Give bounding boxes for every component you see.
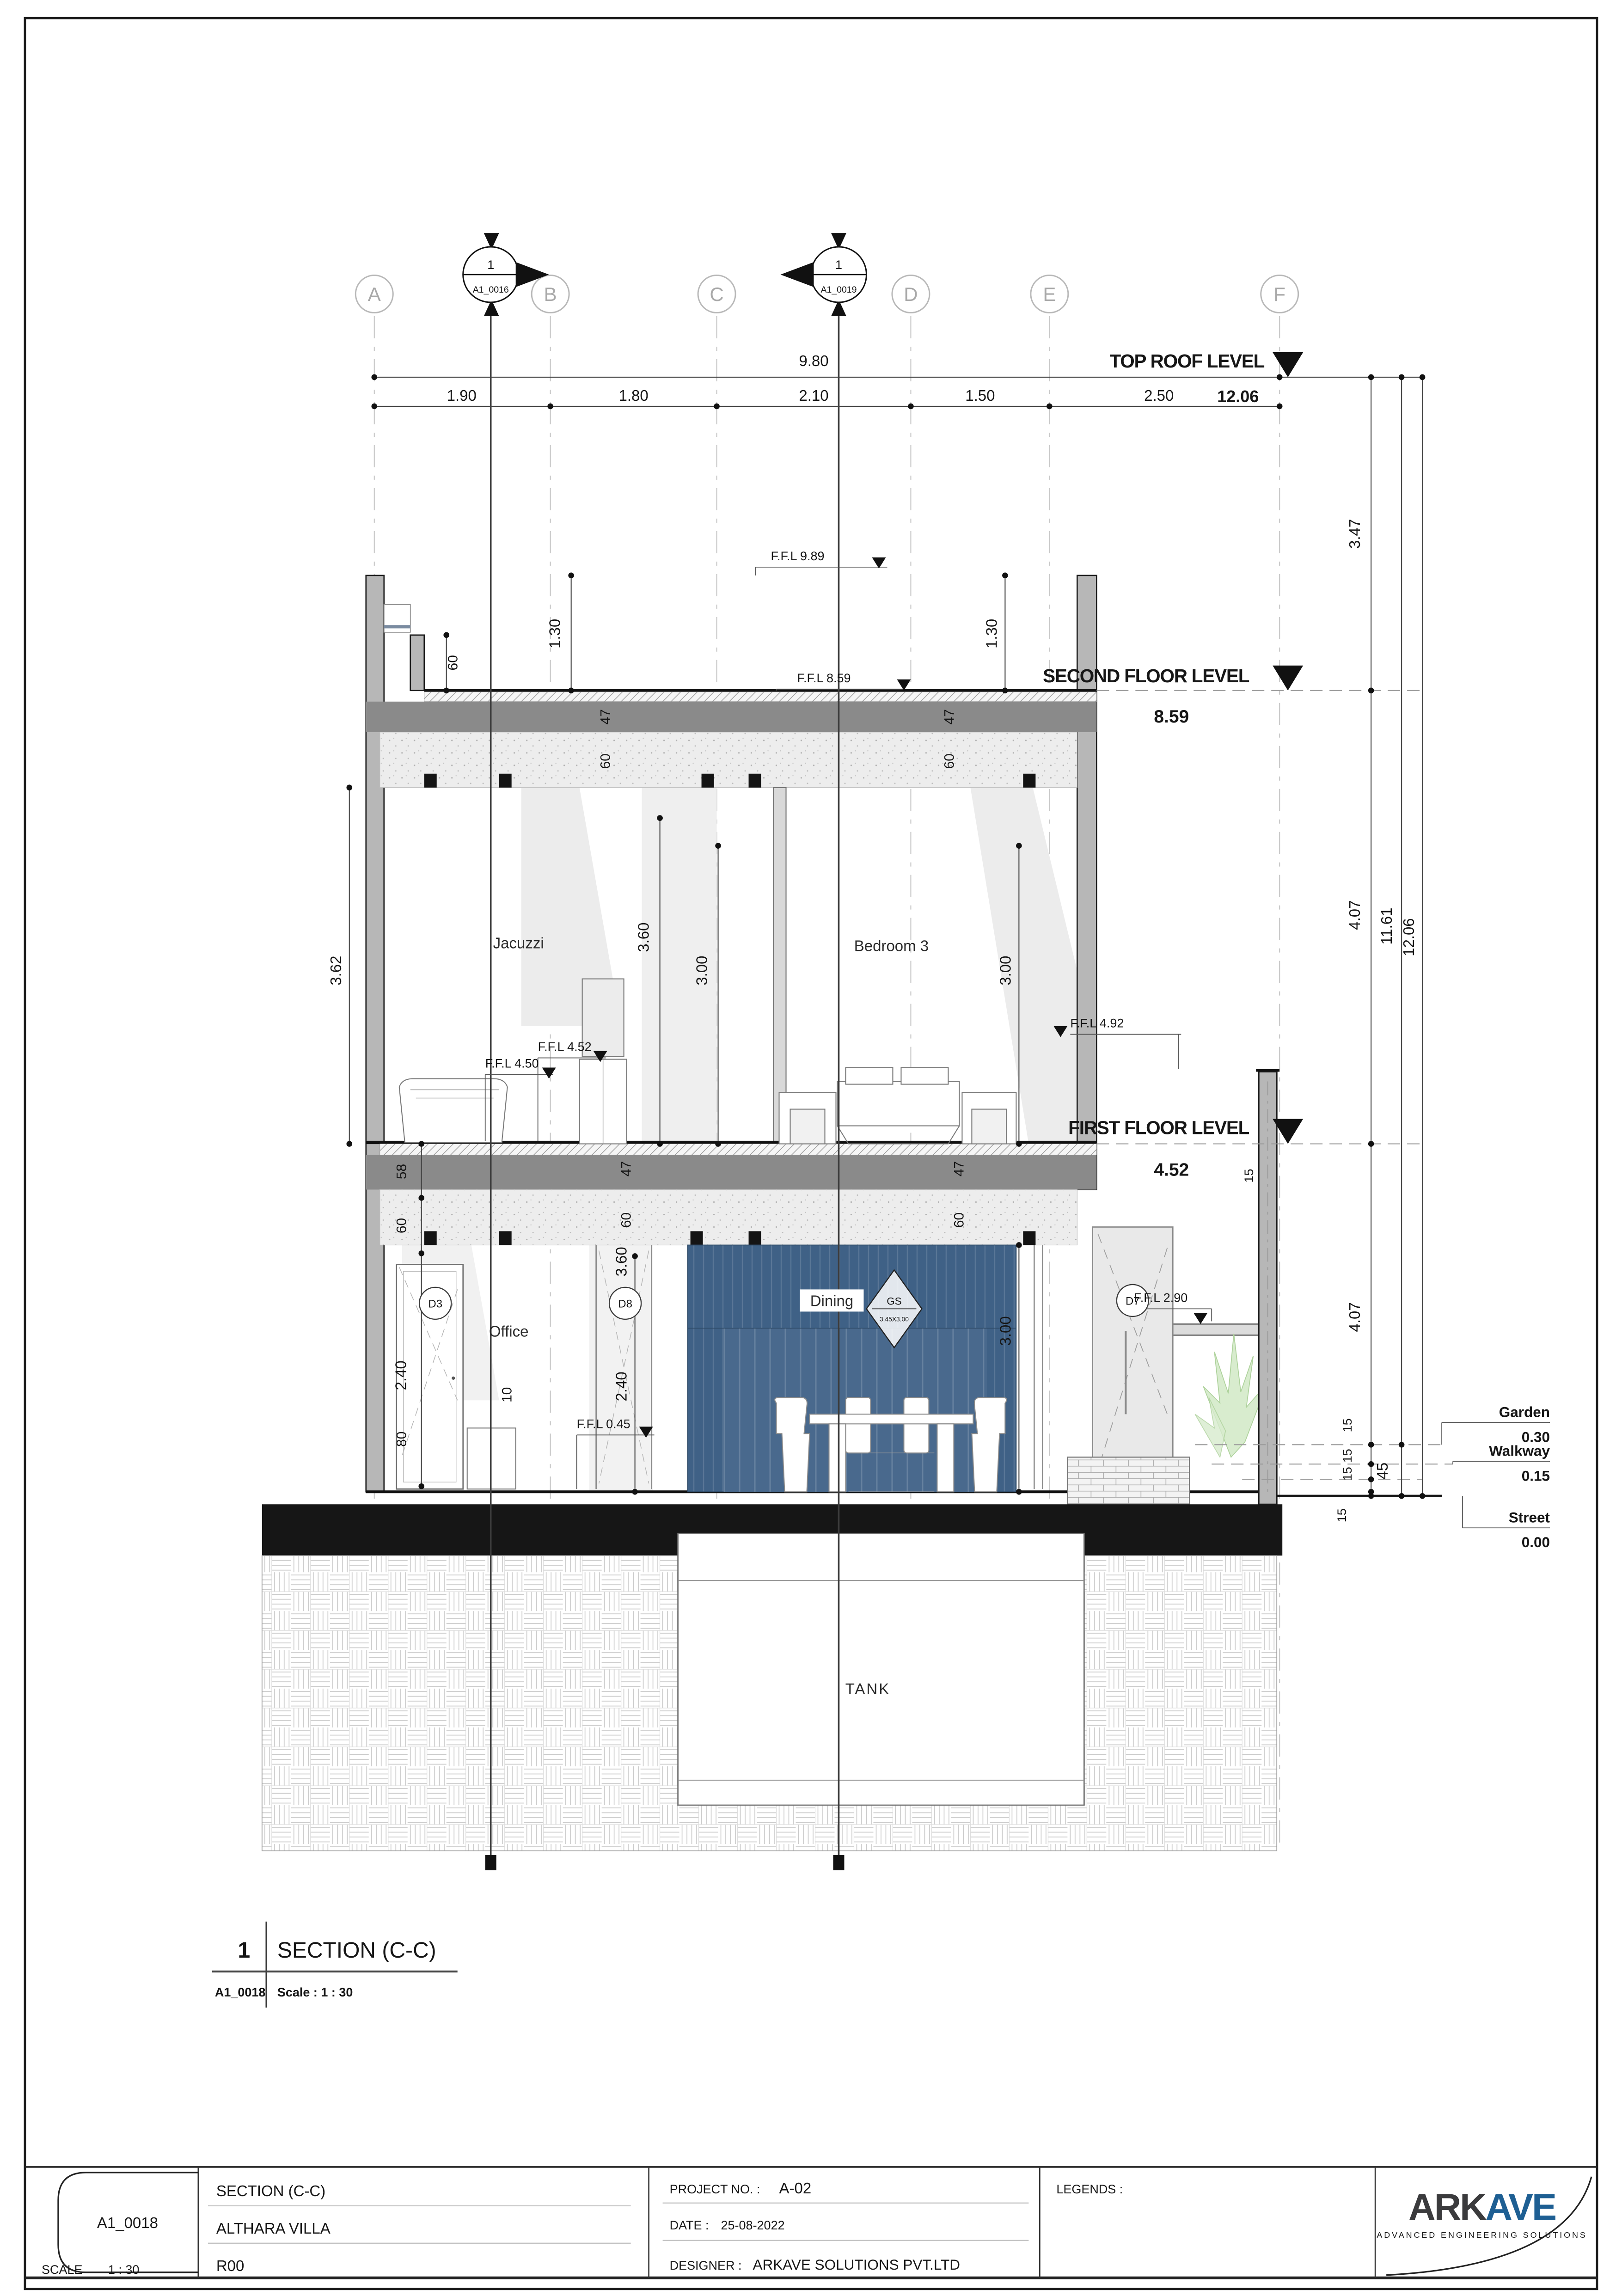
ground bbox=[262, 1445, 1453, 1851]
grid-label-d: D bbox=[904, 283, 918, 305]
dim-dot bbox=[1277, 404, 1283, 410]
dim-label-rotated: 60 bbox=[951, 1212, 967, 1228]
tank bbox=[678, 1533, 1084, 1805]
dim-label: F.F.L 4.52 bbox=[538, 1040, 592, 1054]
dim-dot bbox=[1368, 1442, 1374, 1448]
logo-wordmark: ARKAVE bbox=[1408, 2186, 1555, 2228]
dim-dot bbox=[715, 843, 721, 849]
grid-bubble-f: F bbox=[1261, 276, 1298, 313]
dim-label: 1.80 bbox=[619, 387, 649, 404]
dim-label-rotated: 45 bbox=[1374, 1463, 1391, 1480]
section-title-text: SECTION (C-C) bbox=[277, 1938, 436, 1963]
scale-label: SCALE bbox=[42, 2263, 83, 2277]
dim-label-rotated: 15 bbox=[1340, 1467, 1354, 1481]
site-level-name: Walkway bbox=[1489, 1442, 1550, 1459]
dim-dot bbox=[1368, 1141, 1374, 1147]
dim-dot bbox=[632, 1253, 638, 1259]
dim-label-rotated: 3.00 bbox=[997, 1316, 1014, 1346]
dining-table-top bbox=[810, 1414, 973, 1424]
dim-label-rotated: 15 bbox=[1340, 1449, 1354, 1463]
grid-label-f: F bbox=[1273, 283, 1285, 305]
dim-label-rotated: 12.06 bbox=[1400, 918, 1417, 956]
dim-label-rotated: 1.30 bbox=[983, 619, 1000, 649]
room-label-dining: Dining bbox=[810, 1292, 854, 1309]
dim-dot bbox=[418, 1141, 424, 1147]
dim-label-rotated: 60 bbox=[942, 753, 957, 769]
grid-label-b: B bbox=[544, 283, 557, 305]
dim-label-rotated: 60 bbox=[446, 655, 461, 670]
site-level-name: Street bbox=[1509, 1509, 1550, 1525]
gf-glass-wall bbox=[1034, 1245, 1042, 1489]
dim-dot bbox=[1016, 1242, 1022, 1248]
second-floor-level-label: SECOND FLOOR LEVEL bbox=[1043, 665, 1249, 686]
dining-chair-mid1 bbox=[845, 1397, 870, 1453]
dim-label-rotated: 2.40 bbox=[613, 1371, 630, 1401]
project-no-label: PROJECT NO. : bbox=[670, 2182, 760, 2196]
scale-value: 1 : 30 bbox=[108, 2263, 140, 2277]
dim-dot bbox=[715, 1141, 721, 1147]
dim-label: 2.50 bbox=[1144, 387, 1174, 404]
dim-dot bbox=[1420, 374, 1426, 380]
grid-label-a: A bbox=[368, 283, 381, 305]
dim-dot bbox=[1016, 1141, 1022, 1147]
dim-dot bbox=[1368, 1461, 1374, 1467]
dim-dot bbox=[1016, 843, 1022, 849]
bed-pillow-left bbox=[845, 1068, 893, 1084]
ff-ceiling-band bbox=[380, 732, 1077, 788]
grid-label-c: C bbox=[710, 283, 723, 305]
dim-label: F.F.L 0.45 bbox=[577, 1417, 630, 1431]
dim-label-rotated: 2.40 bbox=[392, 1360, 410, 1390]
dim-label-rotated: 60 bbox=[619, 1212, 634, 1228]
room-label-bedroom3: Bedroom 3 bbox=[854, 937, 929, 955]
dim-dot bbox=[1399, 1493, 1405, 1499]
first-floor-level-label: FIRST FLOOR LEVEL bbox=[1068, 1117, 1249, 1139]
room-label-tank: TANK bbox=[845, 1680, 891, 1697]
section-drawing-canvas: A B C D E F 1 A1_0016 1 A1_0019 TOP ROOF… bbox=[0, 0, 1622, 2296]
marker-right-sheet: A1_0019 bbox=[820, 285, 857, 295]
date-value: 25-08-2022 bbox=[721, 2218, 785, 2232]
dim-label-rotated: 3.62 bbox=[327, 956, 344, 986]
dim-label: 12.06 bbox=[1217, 387, 1259, 406]
dim-label-rotated: 3.47 bbox=[1346, 519, 1363, 549]
arkave-logo: ARKAVE ADVANCED ENGINEERING SOLUTIONS bbox=[1377, 2186, 1587, 2240]
dim-label-rotated: 60 bbox=[598, 753, 613, 769]
dim-dot bbox=[1277, 374, 1283, 380]
sheet-number: A1_0018 bbox=[97, 2214, 158, 2231]
dim-label: 1.90 bbox=[447, 387, 477, 404]
gf-opening-shade bbox=[589, 1245, 653, 1492]
level-triangle-marker bbox=[1273, 666, 1303, 691]
dim-dot bbox=[371, 374, 377, 380]
title-block: A1_0018 SCALE 1 : 30 SECTION (C-C) ALTHA… bbox=[25, 2167, 1597, 2278]
date-label: DATE : bbox=[670, 2218, 709, 2232]
ff-partition-wall bbox=[774, 788, 786, 1144]
second-floor-level-value: 8.59 bbox=[1154, 707, 1189, 727]
dim-dot bbox=[632, 1489, 638, 1495]
project-no-value: A-02 bbox=[779, 2180, 812, 2197]
dim-label-rotated: 11.61 bbox=[1378, 908, 1395, 945]
bed-body bbox=[837, 1082, 959, 1126]
dim-dot bbox=[1368, 687, 1374, 693]
dim-label-rotated: 3.60 bbox=[613, 1247, 630, 1276]
section-marker-right: 1 A1_0019 bbox=[781, 233, 867, 316]
site-level-name: Garden bbox=[1499, 1403, 1550, 1420]
dim-dot bbox=[346, 1141, 352, 1147]
site-level-value: 0.15 bbox=[1522, 1467, 1550, 1484]
dim-dot bbox=[1368, 1476, 1374, 1482]
dim-dot bbox=[418, 1195, 424, 1201]
dim-label: F.F.L 4.92 bbox=[1070, 1016, 1124, 1030]
dim-label-rotated: 3.00 bbox=[693, 956, 710, 986]
section-title-scale: Scale : 1 : 30 bbox=[277, 1985, 353, 1999]
site-level-value: 0.00 bbox=[1522, 1534, 1550, 1550]
grid-bubble-b: B bbox=[532, 276, 569, 313]
grid-label-e: E bbox=[1043, 283, 1056, 305]
dim-dot bbox=[418, 1250, 424, 1256]
dim-dot bbox=[1399, 1442, 1405, 1448]
grid-bubble-d: D bbox=[892, 276, 930, 313]
first-floor-level-value: 4.52 bbox=[1154, 1160, 1189, 1180]
dim-dot bbox=[1016, 1489, 1022, 1495]
dim-label-rotated: 10 bbox=[500, 1387, 515, 1402]
ff-screed bbox=[380, 1144, 1097, 1155]
dim-dot bbox=[1002, 573, 1008, 579]
bed-pillow-right bbox=[901, 1068, 948, 1084]
planter-brick-wall bbox=[1067, 1457, 1189, 1504]
dim-label: F.F.L 8.59 bbox=[797, 671, 851, 685]
roof-terrace-parapet bbox=[410, 635, 424, 691]
designer-value: ARKAVE SOLUTIONS PVT.LTD bbox=[753, 2256, 960, 2273]
marker-right-number: 1 bbox=[835, 258, 842, 272]
dim-label-rotated: 47 bbox=[951, 1161, 967, 1176]
ffl-triangle-marker bbox=[1194, 1313, 1207, 1324]
door-d3-handle bbox=[452, 1377, 455, 1380]
plant-ground bbox=[1195, 1334, 1267, 1457]
dim-dot bbox=[657, 815, 663, 821]
second-slab bbox=[366, 702, 1097, 732]
dim-label-rotated: 4.07 bbox=[1346, 900, 1363, 930]
dim-label-rotated: 47 bbox=[598, 709, 613, 724]
dim-dot bbox=[568, 573, 574, 579]
dim-dot bbox=[443, 632, 449, 638]
dim-label-rotated: 15 bbox=[1242, 1169, 1256, 1182]
drawing-sheet: A B C D E F 1 A1_0016 1 A1_0019 TOP ROOF… bbox=[0, 0, 1622, 2296]
dim-dot bbox=[346, 784, 352, 790]
dim-dot bbox=[1047, 404, 1053, 410]
top-roof-level-label: TOP ROOF LEVEL bbox=[1109, 350, 1264, 372]
dim-label: F.F.L 2.90 bbox=[1134, 1291, 1187, 1304]
gs-tag-size: 3.45X3.00 bbox=[880, 1316, 909, 1322]
dim-label-rotated: 60 bbox=[394, 1218, 410, 1233]
dim-label-rotated: 47 bbox=[619, 1161, 634, 1176]
dim-dot bbox=[1368, 374, 1374, 380]
dim-label: 2.10 bbox=[799, 387, 828, 404]
dim-label-rotated: 80 bbox=[394, 1432, 410, 1447]
dim-label-rotated: 15 bbox=[1335, 1508, 1349, 1522]
dim-label: F.F.L 9.89 bbox=[771, 549, 825, 563]
dim-label-rotated: 3.00 bbox=[997, 956, 1014, 986]
gf-ceiling-band bbox=[380, 1189, 1077, 1245]
logo-tagline: ADVANCED ENGINEERING SOLUTIONS bbox=[1377, 2230, 1587, 2240]
dim-dot bbox=[1399, 374, 1405, 380]
grid-bubble-c: C bbox=[698, 276, 735, 313]
dining-chair-mid2 bbox=[904, 1397, 929, 1453]
dim-dot bbox=[908, 404, 914, 410]
level-triangle-marker bbox=[1273, 352, 1303, 377]
section-title-sheet: A1_0018 bbox=[215, 1985, 266, 1999]
side-table-inset-left bbox=[790, 1109, 825, 1144]
section-title-block: 1 SECTION (C-C) A1_0018 Scale : 1 : 30 bbox=[212, 1922, 458, 2008]
room-label-office: Office bbox=[489, 1322, 529, 1340]
side-table-inset-right bbox=[972, 1109, 1006, 1144]
first-slab bbox=[366, 1155, 1097, 1189]
legends-label: LEGENDS : bbox=[1056, 2182, 1123, 2196]
dim-label-rotated: 1.30 bbox=[546, 619, 563, 649]
dim-dot bbox=[418, 1483, 424, 1489]
project-name: ALTHARA VILLA bbox=[216, 2220, 331, 2237]
dim-label-rotated: 47 bbox=[942, 709, 957, 724]
dim-dot bbox=[714, 404, 720, 410]
terrace-screed bbox=[424, 692, 1097, 702]
gs-tag-code: GS bbox=[887, 1295, 902, 1307]
dim-dot bbox=[1002, 687, 1008, 693]
door-tag-d3: D3 bbox=[428, 1298, 442, 1310]
dim-label: 9.80 bbox=[799, 352, 828, 369]
revision: R00 bbox=[216, 2257, 245, 2274]
site-level-labels: Garden0.30Walkway0.15Street0.00 bbox=[1489, 1403, 1550, 1550]
dim-dot bbox=[443, 687, 449, 693]
drawing-title: SECTION (C-C) bbox=[216, 2182, 325, 2199]
grid-bubble-a: A bbox=[355, 276, 393, 313]
dim-dot bbox=[1368, 1493, 1374, 1499]
dim-label: F.F.L 4.50 bbox=[485, 1057, 539, 1071]
dim-label-rotated: 15 bbox=[1340, 1418, 1354, 1432]
dim-label: 1.50 bbox=[965, 387, 995, 404]
dim-label-rotated: 58 bbox=[394, 1164, 410, 1179]
room-label-jacuzzi: Jacuzzi bbox=[493, 935, 544, 952]
section-title-number: 1 bbox=[238, 1938, 251, 1963]
dim-dot bbox=[657, 1141, 663, 1147]
dim-label-rotated: 3.60 bbox=[635, 923, 652, 952]
dim-dot bbox=[568, 687, 574, 693]
designer-label: DESIGNER : bbox=[670, 2259, 742, 2272]
marker-left-number: 1 bbox=[487, 258, 494, 272]
grid-bubble-e: E bbox=[1031, 276, 1068, 313]
door-tag-d8: D8 bbox=[618, 1298, 632, 1310]
dim-label-rotated: 4.07 bbox=[1346, 1302, 1363, 1332]
dim-dot bbox=[547, 404, 553, 410]
marker-left-sheet: A1_0016 bbox=[473, 285, 509, 295]
dim-dot bbox=[371, 404, 377, 410]
dim-dot bbox=[1420, 1493, 1426, 1499]
ffl-triangle-marker bbox=[542, 1068, 556, 1079]
